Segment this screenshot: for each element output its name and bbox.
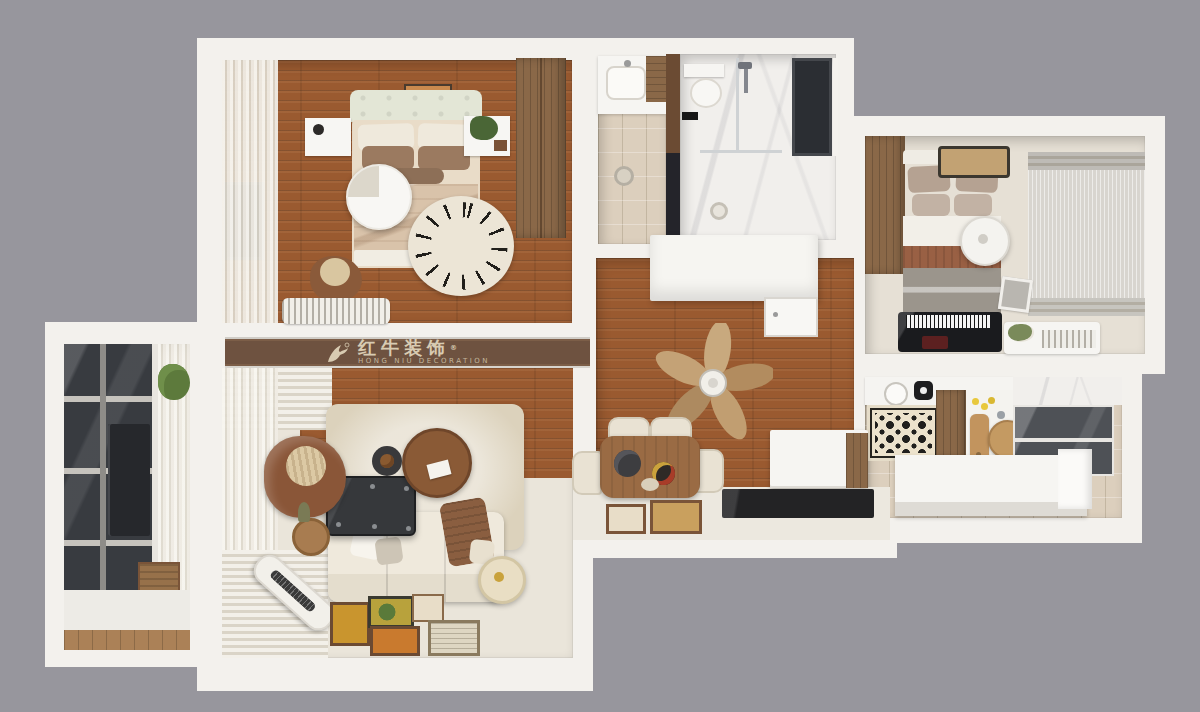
floor-art-frame [368,596,414,628]
piano-keys [906,315,990,328]
bath-accessory-shelf [682,112,698,120]
nightstand-left [305,118,351,156]
shower-glass-panel [700,150,782,153]
table-tray [614,450,641,477]
shower-glass-panel [736,58,739,152]
bedroom-curtains [222,60,278,323]
counter-basin [884,382,908,406]
sofa-pillow [374,536,403,565]
rug-pattern [408,196,514,296]
nightstand-box [494,140,507,151]
kitchen-wood-cabinet [936,390,966,458]
registered-mark: ® [450,344,462,352]
toilet-tank [684,64,724,77]
floor-lamp-bulb [494,572,504,582]
window-sill [833,58,838,156]
bed2-pillow [912,194,950,216]
round-rug [408,196,514,296]
pendant-lamp-center [978,234,988,244]
balcony-tv-panel [108,424,150,536]
bedroom-heater-unit [282,298,390,324]
floor-picture-frame [998,276,1033,313]
bathroom-wood-shelf [646,56,666,102]
bed2-ceiling-light [938,146,1010,178]
sink-faucet [624,60,631,67]
watermark-text: 红牛装饰® HONG NIU DECORATION [358,340,490,365]
side-table [292,518,330,556]
sideboard-wood-panel [846,433,868,488]
bed2-duvet [903,268,1001,314]
bathroom-window [792,58,832,156]
bed-headboard [350,90,482,122]
brand-name-cn: 红牛装饰 [358,337,450,358]
balcony-white-floor [64,590,190,632]
shower-drain [710,202,728,220]
potted-plant [470,116,498,140]
bull-logo-icon [325,342,351,364]
floor-art-frame [330,602,370,646]
floor-art-frame [428,620,480,656]
floor-art-frame [370,626,420,656]
door-knob [773,312,778,317]
snack-bowl-contents [380,454,394,468]
lemons [972,398,979,405]
wardrobe-divider [540,58,542,238]
balcony-wood-strip [64,630,190,650]
piano-book [922,336,948,349]
floorplan-scene: 红牛装饰® HONG NIU DECORATION [0,0,1200,712]
balcony-plant [158,364,190,400]
appliance-dial [920,387,927,394]
radiator-vents [1042,330,1096,348]
table-lamp [313,124,324,135]
shower-head [738,62,752,69]
island-step [1058,449,1092,509]
window-mullion-vertical [100,344,106,612]
ceiling-lamp [346,164,412,230]
toilet-bowl [690,78,722,108]
table-centerpiece [641,478,659,491]
kitchen-backsplash [1013,377,1122,405]
kitchen-faucet [997,411,1005,419]
window-mullion [64,396,152,402]
dried-plant [298,502,310,522]
armchair-blanket [320,258,350,286]
hall-floor-frame [606,504,646,534]
shower-arm [744,69,748,93]
storage-cabinet-volume [650,235,818,301]
kitchen-rug [870,408,937,458]
vanity-sink [606,66,646,100]
bathroom-partition [666,54,680,244]
bedroom2-sheer-curtain [1028,152,1145,316]
floor-art-frame [412,594,444,622]
brand-name-en: HONG NIU DECORATION [358,357,490,365]
floor-drain [614,166,634,186]
second-wardrobe [865,136,905,274]
cooktop-counter [722,489,874,518]
dining-chair [572,451,602,495]
hall-floor-frame [650,500,702,534]
bed-accent-pillow [418,146,470,170]
watermark-logo-bar: 红牛装饰® HONG NIU DECORATION [225,337,590,368]
window-mullion [64,540,152,546]
bedroom2-blind-top [1028,152,1145,170]
bedroom2-blind-bottom [1028,298,1145,316]
bed2-pillow [954,194,992,216]
